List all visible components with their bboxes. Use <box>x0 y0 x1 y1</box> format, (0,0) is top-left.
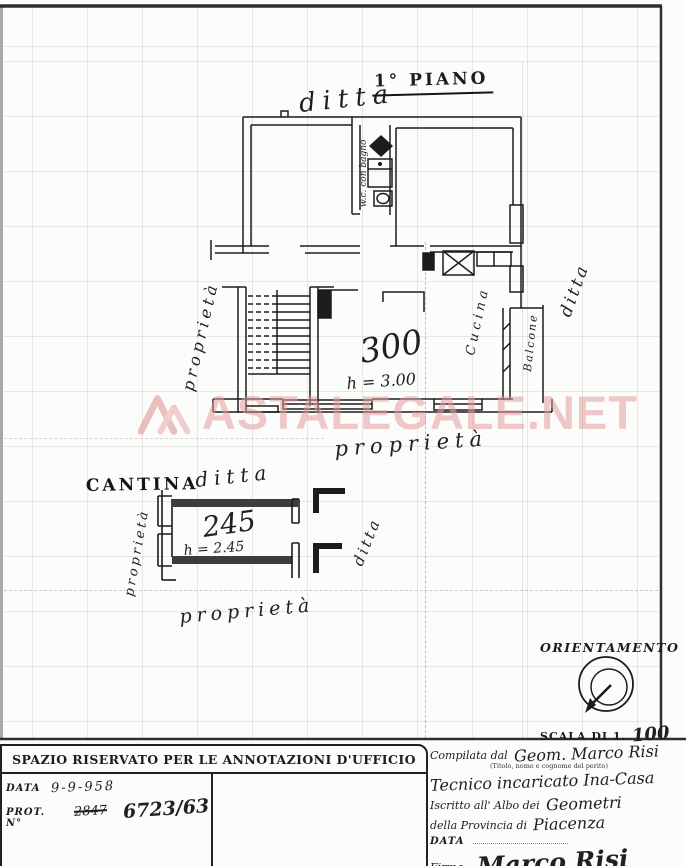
annotations-body: DATA 9-9-958 PROT. N° 2847 6723/63 <box>2 774 426 866</box>
protocol-new-number: 6723/63 <box>122 795 210 823</box>
protocol-row: PROT. N° 2847 6723/63 <box>6 798 209 829</box>
firma-row: Firma: Marco Risi <box>430 848 686 866</box>
piano-proprieta-left-label: proprietà <box>178 280 222 393</box>
cantina-proprieta-bottom-label: proprietà <box>179 594 316 628</box>
compiler-data-row: DATA <box>430 834 686 847</box>
provincia-label: della Provincia di <box>430 819 527 832</box>
compiler-data-label: DATA <box>430 836 465 847</box>
annotations-right-cell <box>213 774 426 866</box>
data-value: 9-9-958 <box>50 779 115 796</box>
data-label: DATA <box>6 783 41 794</box>
page-frame <box>0 6 686 740</box>
piano-room-area-label: 300 <box>357 322 426 371</box>
compilata-label: Compilata dal <box>430 749 508 762</box>
orientation-title: ORIENTAMENTO <box>540 640 670 655</box>
piano-balcony-label: Balcone <box>521 313 540 374</box>
protocol-old-number: 2847 <box>73 803 107 820</box>
piano-ditta-right-label: ditta <box>556 261 594 320</box>
orientation-block: ORIENTAMENTO SCALA DI 1. 100 <box>540 640 670 745</box>
piano-room-height-label: h = 3.00 <box>346 369 417 393</box>
albo-value: Geometri <box>545 793 621 815</box>
provincia-row: della Provincia di Piacenza <box>430 814 686 833</box>
compiler-role-value: Tecnico incaricato Ina-Casa <box>430 768 655 795</box>
compiler-data-dotted-line <box>473 834 568 844</box>
piano-kitchen-label: Cucina <box>463 285 492 356</box>
cantina-ditta-right-label: ditta <box>349 515 385 568</box>
floor-title: 1° PIANO <box>372 68 493 96</box>
firma-signature: Marco Risi <box>476 844 629 866</box>
piano-proprieta-bottom-label: proprietà <box>334 426 489 461</box>
scale-label: SCALA DI 1. <box>540 730 626 743</box>
annotations-left-cell: DATA 9-9-958 PROT. N° 2847 6723/63 <box>2 774 213 866</box>
compass-icon <box>559 655 651 717</box>
data-row: DATA 9-9-958 <box>6 780 209 795</box>
compilata-row: Compilata dal Geom. Marco Risi <box>430 744 686 763</box>
cantina-room-area-label: 245 <box>199 504 258 544</box>
piano-wc-label: w.c. con bagno <box>359 139 369 207</box>
cantina-room-height-label: h = 2.45 <box>183 539 245 559</box>
annotations-header: SPAZIO RISERVATO PER LE ANNOTAZIONI D'UF… <box>2 746 426 774</box>
albo-label: Iscritto all' Albo dei <box>430 799 540 812</box>
compiler-section: Compilata dal Geom. Marco Risi (Titolo, … <box>430 744 686 866</box>
albo-row: Iscritto all' Albo dei Geometri <box>430 794 686 813</box>
cantina-title: CANTINA <box>86 474 199 496</box>
piano-plan-drawing <box>211 111 552 413</box>
provincia-value: Piacenza <box>533 813 606 835</box>
scanned-floor-plan-page: ditta w.c. con bagno 300 h = 3.00 Cucina… <box>0 0 686 866</box>
cantina-proprieta-left-label: proprietà <box>122 508 152 598</box>
protocol-label: PROT. N° <box>6 807 64 829</box>
office-annotations-box: SPAZIO RISERVATO PER LE ANNOTAZIONI D'UF… <box>0 744 428 866</box>
cantina-ditta-top-label: ditta <box>194 460 273 492</box>
firma-label: Firma: <box>430 861 467 866</box>
